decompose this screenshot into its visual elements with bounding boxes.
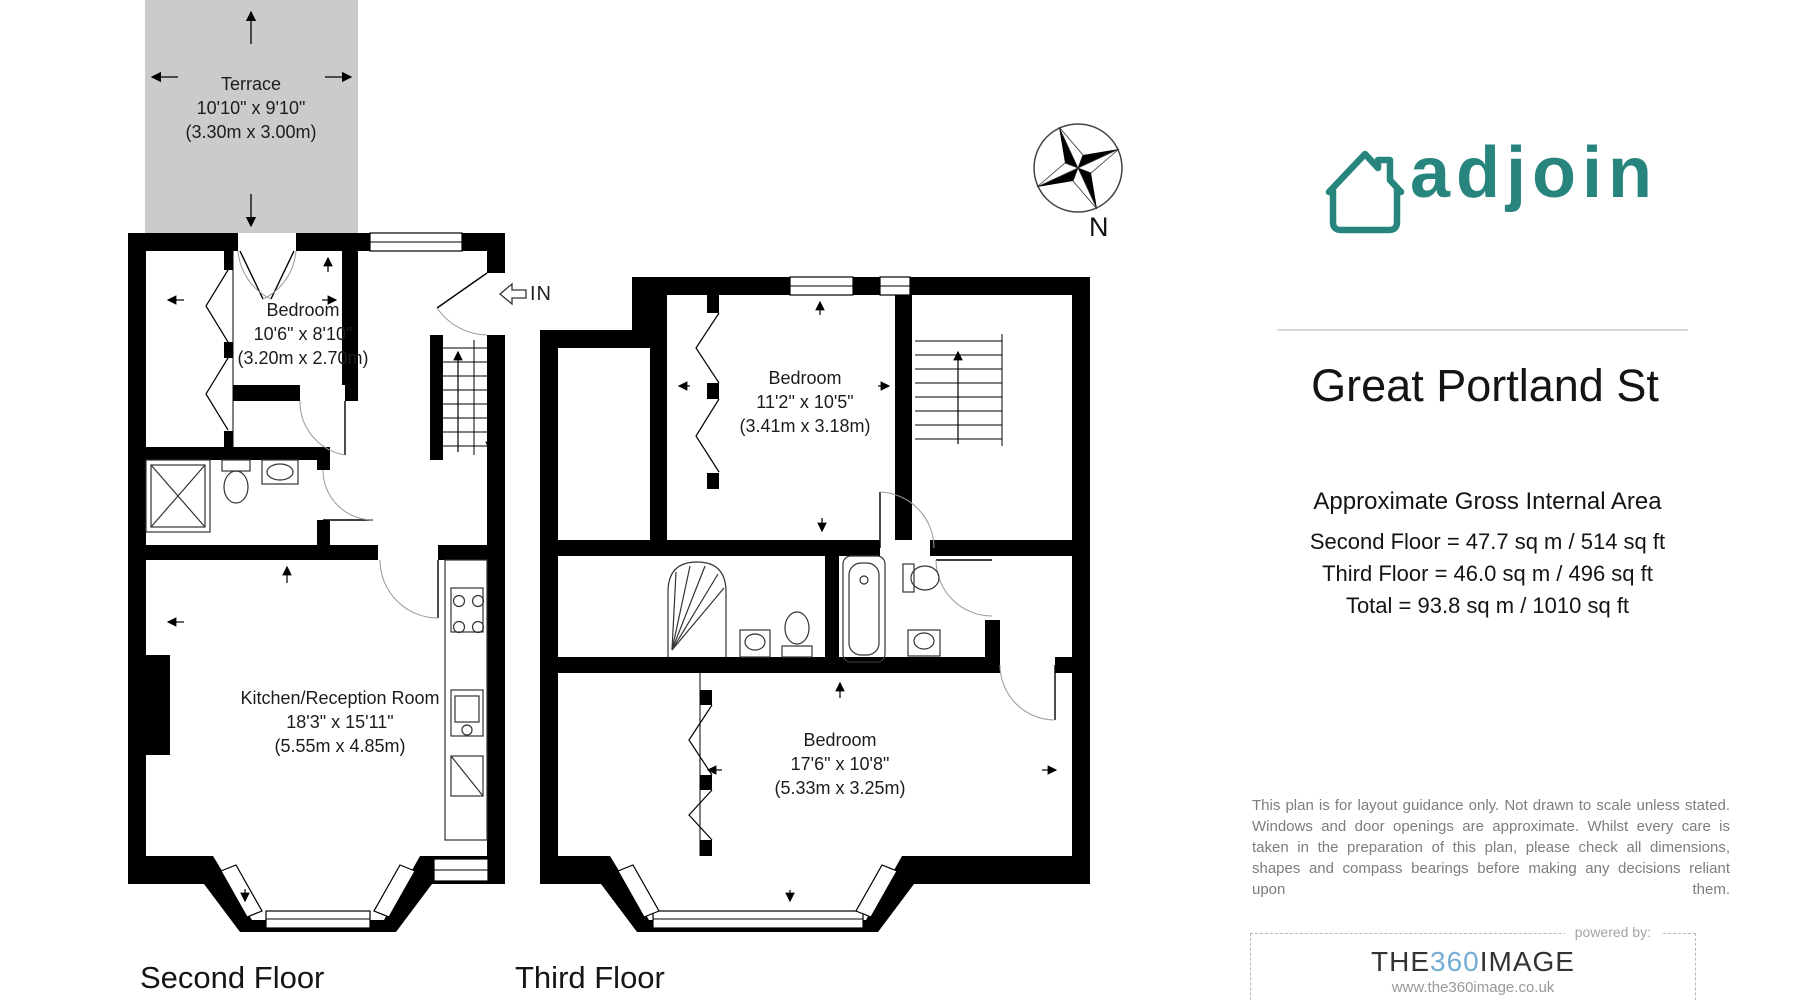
toilet-icon [903,564,914,592]
third-floor-stairs [915,334,1002,446]
property-title: Great Portland St [1240,360,1730,412]
room-label-terrace: Terrace 10'10" x 9'10" (3.30m x 3.00m) [185,72,316,144]
house-icon [1315,140,1405,240]
area-heading: Approximate Gross Internal Area [1240,488,1735,516]
sink-icon [908,630,940,656]
toilet-icon [782,646,812,657]
kitchen-counter [445,560,487,840]
bathroom-fixtures [146,460,298,532]
powered-by-box: powered by: THE360IMAGE www.the360image.… [1250,933,1696,1000]
entrance-in-label: IN [530,283,552,306]
toilet-icon [222,460,250,471]
the360image-image: IMAGE [1480,946,1575,977]
third-floor-bathroom-fixtures [668,556,940,662]
disclaimer-text: This plan is for layout guidance only. N… [1252,795,1730,900]
area-summary: Approximate Gross Internal Area Second F… [1240,488,1735,622]
room-label-bedroom2-third: Bedroom 17'6" x 10'8" (5.33m x 3.25m) [774,728,905,800]
area-line-third: Third Floor = 46.0 sq m / 496 sq ft [1240,558,1735,590]
room-label-kitchen: Kitchen/Reception Room 18'3" x 15'11" (5… [240,686,439,758]
second-floor-label: Second Floor [140,960,324,996]
kitchen-sink-icon [451,690,483,736]
panel-divider [1277,329,1688,331]
the360image-360: 360 [1430,946,1480,977]
info-panel: adjoin Great Portland St Approximate Gro… [1240,0,1740,1000]
the360image-logo: THE360IMAGE [1251,946,1695,978]
floorplan-page: Terrace 10'10" x 9'10" (3.30m x 3.00m) B… [0,0,1800,1000]
entrance-arrow-left-icon [500,284,526,304]
floorplan-drawing [0,0,1140,1000]
powered-by-label: powered by: [1565,924,1661,940]
third-floor-label: Third Floor [515,960,665,996]
adjoin-logo: adjoin [1315,140,1735,240]
the360image-url: www.the360image.co.uk [1251,979,1695,996]
hob-icon [451,588,483,632]
compass-north-label: N [1089,212,1109,243]
room-label-bedroom1-third: Bedroom 11'2" x 10'5" (3.41m x 3.18m) [739,366,870,438]
the360image-the: THE [1371,946,1430,977]
area-line-second: Second Floor = 47.7 sq m / 514 sq ft [1240,526,1735,558]
area-line-total: Total = 93.8 sq m / 1010 sq ft [1240,590,1735,622]
adjoin-logo-text: adjoin [1410,132,1658,214]
compass-icon [1034,124,1122,212]
room-label-bedroom-second: Bedroom 10'6" x 8'10" (3.20m x 2.70m) [237,298,368,370]
